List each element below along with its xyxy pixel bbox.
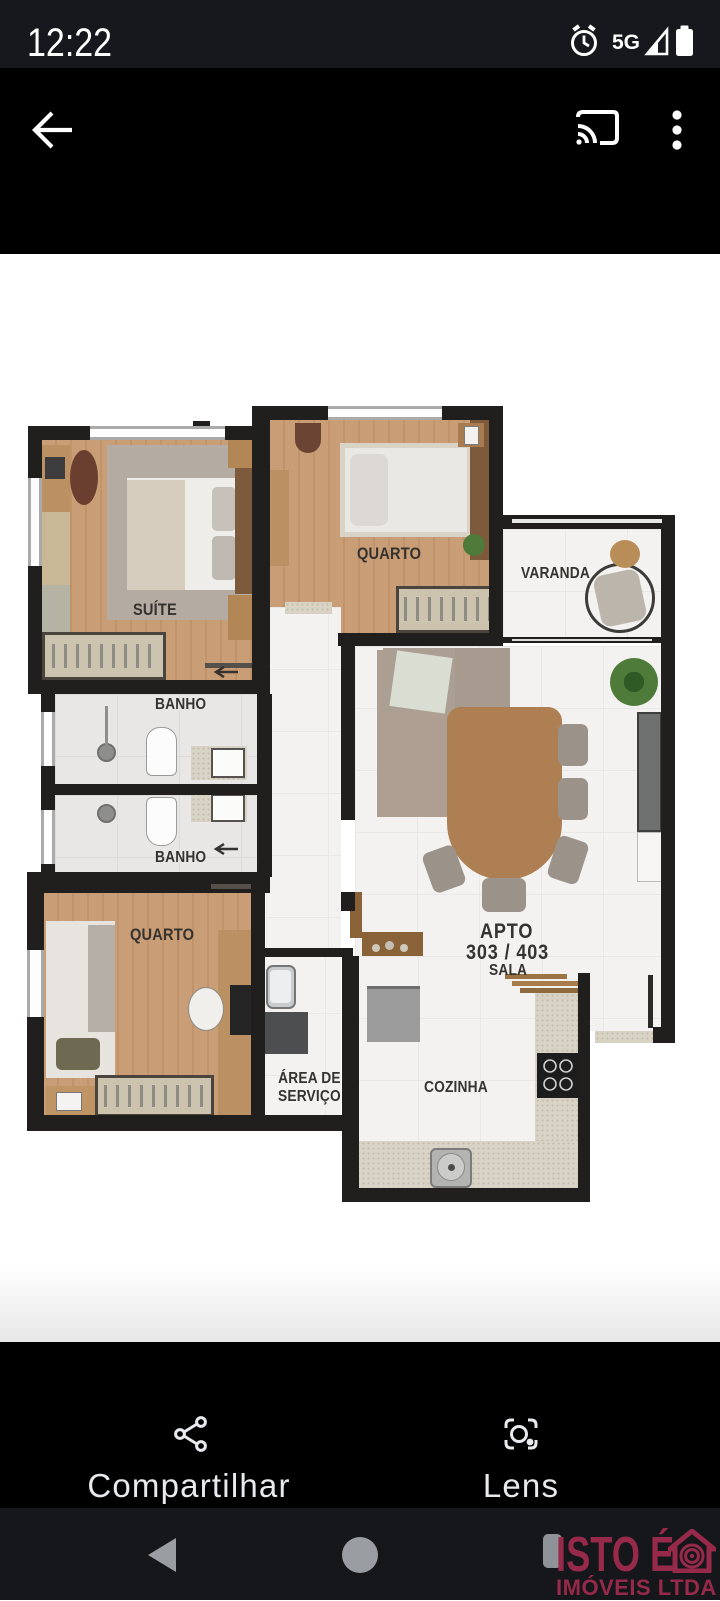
svg-text:5G: 5G	[612, 31, 640, 54]
